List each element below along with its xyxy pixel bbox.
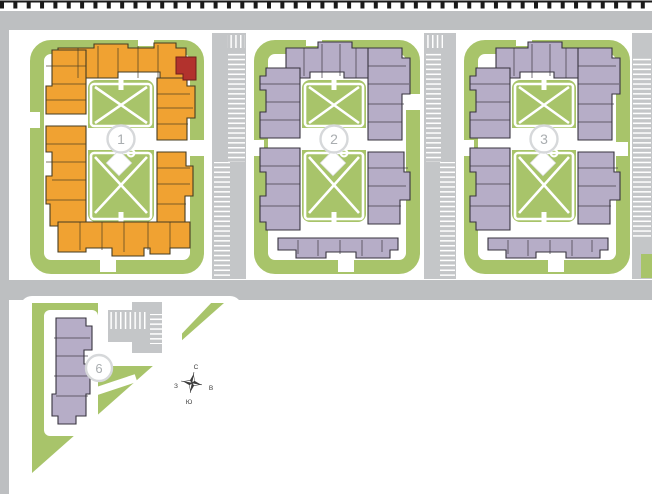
site-boundary-line (0, 2, 652, 6)
site-plan-page: 1 (0, 0, 652, 498)
building-2-number: 2 (330, 131, 338, 147)
building-3-badge[interactable]: 3 (531, 126, 558, 153)
building-6-number: 6 (95, 361, 102, 376)
parking-strip-2 (424, 33, 456, 279)
compass-west-label: З (174, 383, 178, 390)
road-left (0, 11, 9, 494)
building-1-badge[interactable]: 1 (108, 126, 135, 153)
building-6-badge[interactable]: 6 (86, 355, 112, 381)
parking-strip-right (632, 33, 652, 279)
building-1-number: 1 (117, 131, 125, 147)
site-plan-map: 1 (0, 0, 652, 498)
parking-strip-1 (212, 33, 246, 279)
compass-south-label: Ю (186, 399, 193, 406)
building-3-number: 3 (540, 131, 548, 147)
road-top (0, 11, 652, 30)
building-2-badge[interactable]: 2 (321, 126, 348, 153)
compass-north-label: С (194, 364, 199, 371)
compass-east-label: В (209, 385, 213, 392)
